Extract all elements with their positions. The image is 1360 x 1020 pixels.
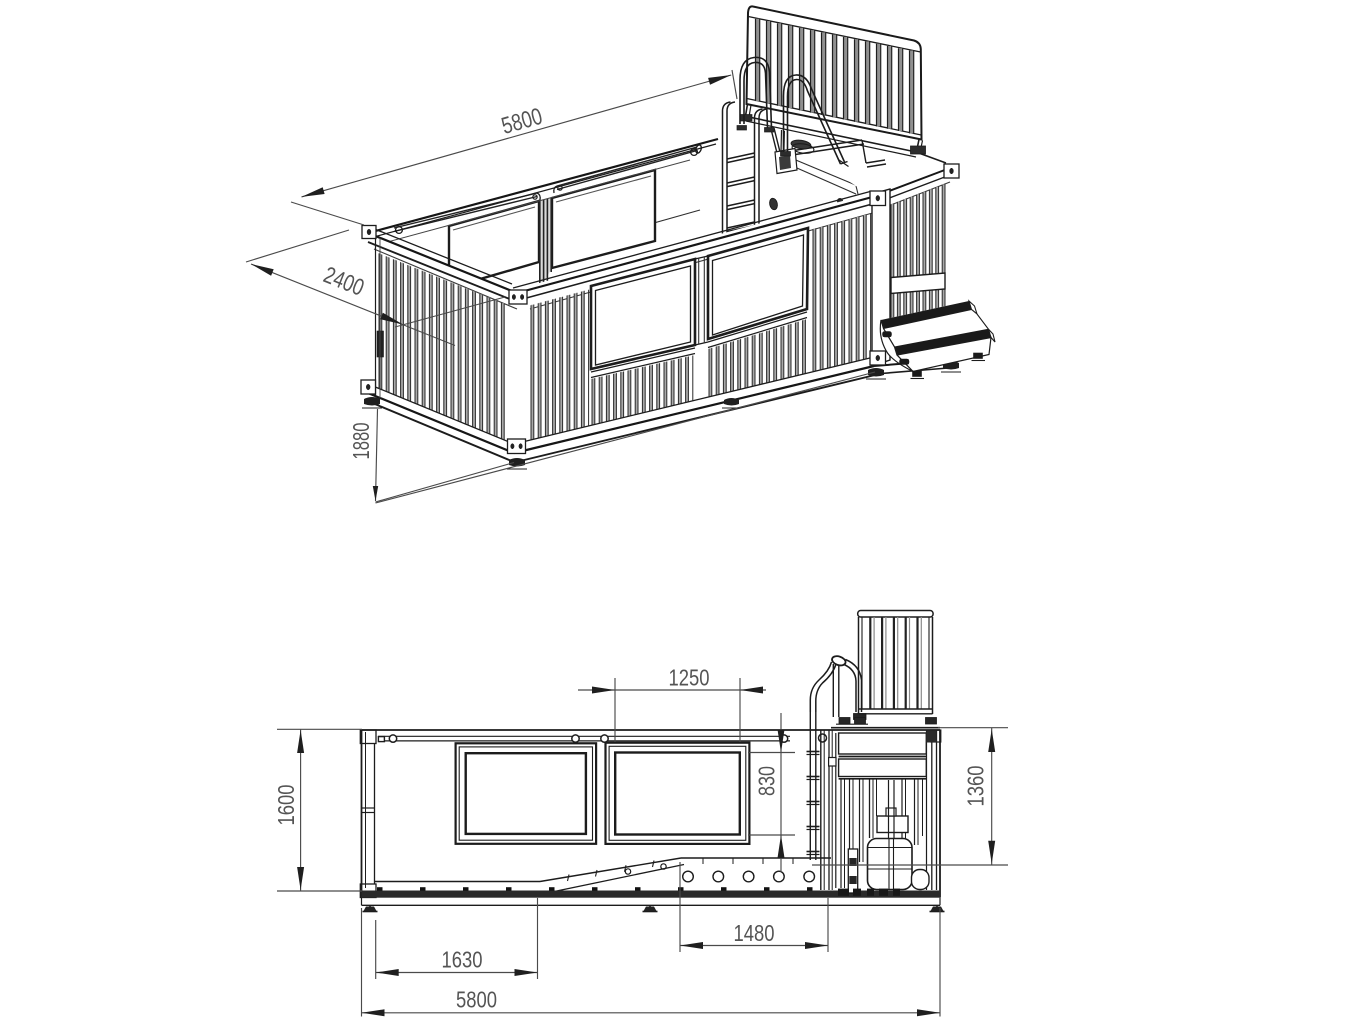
- svg-text:1880: 1880: [348, 423, 374, 460]
- svg-text:1600: 1600: [273, 785, 299, 826]
- svg-text:1480: 1480: [734, 920, 775, 946]
- svg-text:1630: 1630: [442, 947, 483, 973]
- svg-text:5800: 5800: [456, 987, 497, 1013]
- svg-text:1250: 1250: [669, 665, 710, 691]
- svg-text:830: 830: [754, 766, 780, 796]
- svg-text:1360: 1360: [963, 766, 989, 807]
